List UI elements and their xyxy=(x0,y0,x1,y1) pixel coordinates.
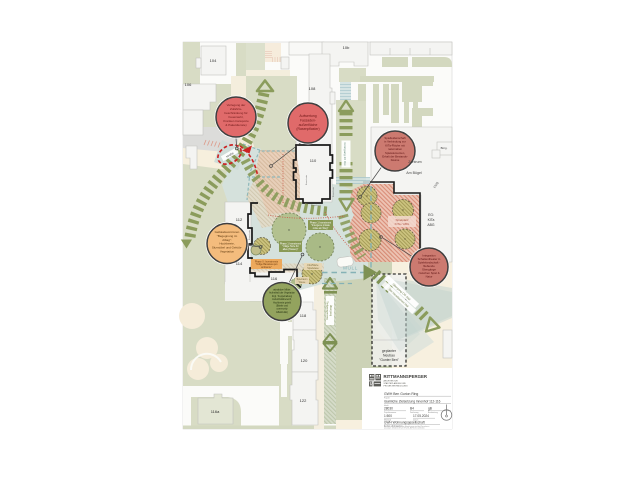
svg-text:Spielwiese: Spielwiese xyxy=(307,267,319,270)
svg-text:Aufwertung: Aufwertung xyxy=(299,114,316,118)
svg-text:Wiese: Wiese xyxy=(299,281,306,284)
svg-text:außenfläche: außenfläche xyxy=(299,123,318,127)
svg-text:10b: 10b xyxy=(343,45,350,50)
svg-text:Aufenthalt der Vegetation: Aufenthalt der Vegetation xyxy=(269,292,296,295)
svg-text:Zentrum: Zentrum xyxy=(408,160,421,164)
svg-text:116: 116 xyxy=(271,276,278,281)
svg-text:attraktive Mitte:: attraktive Mitte: xyxy=(273,288,291,292)
svg-text:Effektivität): Effektivität) xyxy=(276,311,288,314)
svg-text:Raumkante: Raumkante xyxy=(311,204,322,207)
svg-text:STADTEPLANUNG UND: STADTEPLANUNG UND xyxy=(384,382,407,385)
svg-text:community: community xyxy=(276,308,288,311)
svg-text:28030: 28030 xyxy=(384,407,393,411)
svg-text:Hochbeete geteilt: Hochbeete geteilt xyxy=(273,301,291,304)
svg-text:bäume: bäume xyxy=(391,158,400,162)
svg-text:Raumkante: Raumkante xyxy=(305,174,308,185)
svg-text:alles (Tassen)": alles (Tassen)" xyxy=(283,248,299,251)
svg-text:120: 120 xyxy=(301,358,308,363)
svg-text:GWH Wohnungsgesellschaft: GWH Wohnungsgesellschaft xyxy=(384,420,425,424)
svg-text:RITTMANNSPERGER: RITTMANNSPERGER xyxy=(384,374,428,379)
svg-text:ABG: ABG xyxy=(427,223,435,227)
svg-text:GWH Ben Gurion Ring: GWH Ben Gurion Ring xyxy=(384,392,418,396)
svg-text:116a: 116a xyxy=(211,409,220,414)
svg-text:114: 114 xyxy=(236,261,243,266)
svg-text:Bürg.: Bürg. xyxy=(441,146,448,150)
svg-text:& Paketdienste): & Paketdienste) xyxy=(225,123,246,127)
svg-text:ARCHITEKTUR: ARCHITEKTUR xyxy=(384,379,399,382)
svg-text:bzgl. Treppehaltung: bzgl. Treppehaltung xyxy=(272,295,293,298)
svg-text:108: 108 xyxy=(309,86,316,91)
svg-text:MÜLL: MÜLL xyxy=(343,265,358,272)
svg-text:106: 106 xyxy=(185,82,192,87)
svg-text:B4: B4 xyxy=(410,407,414,411)
svg-text:ambiente": ambiente" xyxy=(261,266,272,269)
svg-text:Tiefgaragenweg: Tiefgaragenweg xyxy=(326,301,330,320)
svg-text:Bearbeitung: Bearbeitung xyxy=(428,411,438,414)
svg-text:gB: gB xyxy=(428,407,432,411)
svg-text:118: 118 xyxy=(300,313,307,318)
svg-text:110: 110 xyxy=(310,158,317,163)
svg-text:112: 112 xyxy=(236,217,243,222)
svg-text:104: 104 xyxy=(210,58,217,63)
svg-text:geplanter: geplanter xyxy=(382,349,397,353)
svg-text:Aufenthaltsbereich,: Aufenthaltsbereich, xyxy=(272,298,292,301)
svg-text:mitte am Weg": mitte am Weg" xyxy=(313,227,329,230)
svg-text:Grüngang 26 Ost: Grüngang 26 Ost xyxy=(343,142,347,165)
svg-text:KITa: KITa xyxy=(428,218,435,222)
svg-text:Neubau: Neubau xyxy=(383,354,395,358)
svg-text:122: 122 xyxy=(300,398,307,403)
svg-text:räumliche Zielsetzung Innenhof: räumliche Zielsetzung Innenhof 112-116 xyxy=(384,399,441,403)
svg-text:Natur: Natur xyxy=(426,275,433,279)
svg-text:Vegetation: Vegetation xyxy=(220,250,235,254)
svg-text:KITa / ABG: KITa / ABG xyxy=(395,222,410,226)
svg-text:Fassaden-: Fassaden- xyxy=(300,118,316,122)
svg-text:EG:: EG: xyxy=(428,213,434,217)
svg-text:1:500: 1:500 xyxy=(384,414,392,418)
svg-text:Am Bügel: Am Bügel xyxy=(406,171,422,175)
svg-text:"Gunter Ben": "Gunter Ben" xyxy=(379,358,400,362)
svg-text:PROJEKTENTWICKLUNG: PROJEKTENTWICKLUNG xyxy=(384,386,408,388)
svg-text:Raumkante: Raumkante xyxy=(248,229,251,240)
svg-text:(Bänke und: (Bänke und xyxy=(276,306,288,308)
svg-text:Raumkante: Raumkante xyxy=(332,186,335,197)
svg-text:(Rasenpflaster): (Rasenpflaster) xyxy=(296,127,319,131)
svg-text:17.05.2024: 17.05.2024 xyxy=(413,414,429,418)
